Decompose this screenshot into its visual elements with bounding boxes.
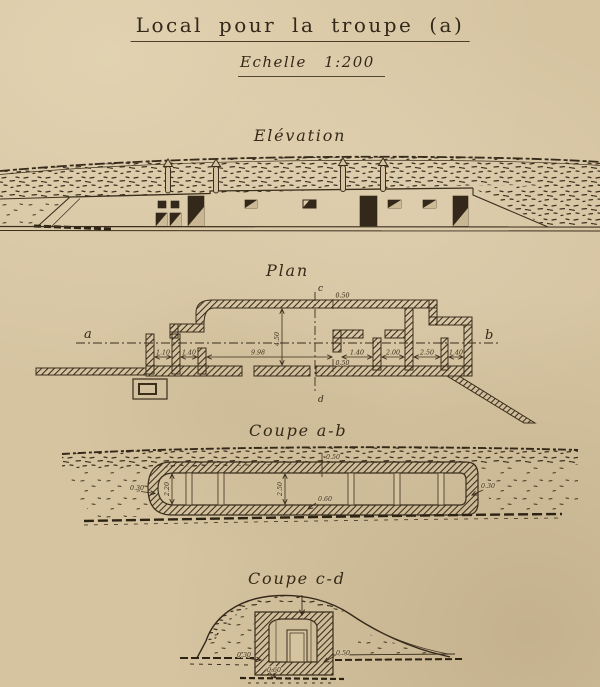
partition — [348, 473, 354, 505]
section-marker-d: d — [318, 395, 324, 405]
elevation-label: Elévation — [254, 126, 347, 145]
coupe-ab-drawing: 0.50 0.30 2.20 2.50 0.60 0.30 — [0, 441, 600, 541]
bottom-wall — [146, 366, 242, 376]
plan-drawing: 4.50 9.98 1.10 1.40 1.40 2.00 2.50 1.40 … — [0, 282, 600, 425]
partition — [218, 473, 224, 505]
dim-right-wall: 0.50 — [336, 650, 350, 657]
dim-roof: 0.50 — [326, 454, 340, 461]
facade-openings — [156, 196, 468, 226]
dim-right-wall: 0.30 — [481, 483, 495, 490]
right-earth — [333, 629, 462, 660]
dim-floor: 0.60 — [267, 667, 281, 674]
door — [360, 196, 377, 226]
dim-room2: 2.00 — [385, 350, 400, 357]
coupe-cd-drawing: 0.30 0.60 0.50 — [0, 585, 600, 687]
partition — [438, 473, 444, 505]
shell — [148, 462, 478, 515]
dim-room1: 1.40 — [350, 350, 364, 357]
elevation-drawing — [0, 147, 600, 252]
dim-left-wall: 0.30 — [130, 485, 144, 492]
bottom-wall — [316, 366, 472, 376]
section-marker-b: b — [485, 328, 493, 343]
top-wall — [196, 300, 437, 324]
window — [158, 201, 166, 208]
partitions — [186, 473, 444, 505]
partition — [405, 308, 413, 370]
dim-height-left: 2.20 — [164, 482, 171, 497]
page-title: Local pour la troupe (a) — [131, 13, 470, 42]
plan-label: Plan — [266, 261, 309, 280]
window — [171, 201, 179, 208]
plan-walls — [36, 300, 535, 423]
dim-room4: 1.40 — [449, 350, 463, 357]
dim-wall-bottom: 0.50 — [336, 360, 350, 367]
dim-height-main: 2.50 — [277, 482, 284, 497]
coupe-ab-label: Coupe a-b — [249, 421, 347, 440]
dim-left-wall: 0.30 — [237, 652, 251, 659]
partition — [394, 473, 400, 505]
annex-box — [133, 379, 167, 399]
left-embankment — [0, 197, 112, 229]
diagonal-wall — [447, 376, 535, 423]
section-marker-c: c — [318, 284, 323, 294]
dim-wall-top: 0.50 — [336, 293, 350, 300]
dim-length: 9.98 — [251, 350, 265, 357]
section-marker-a: a — [84, 327, 92, 342]
approach-wall — [36, 368, 146, 375]
drawing-sheet: Local pour la troupe (a) Echelle 1:200 E… — [0, 0, 600, 687]
scale-note: Echelle 1:200 — [238, 53, 385, 77]
partition — [186, 473, 192, 505]
ground-line — [84, 514, 562, 525]
dim-corridor: 1.10 — [156, 350, 170, 357]
chamber-door — [287, 630, 307, 662]
right-embankment — [473, 183, 600, 227]
dim-depth: 4.50 — [274, 332, 281, 347]
dim-entry: 1.40 — [182, 350, 196, 357]
ground-under — [240, 678, 344, 683]
dim-floor: 0.60 — [318, 496, 332, 503]
dim-room3: 2.50 — [419, 350, 434, 357]
bottom-wall — [254, 366, 310, 376]
right-wall — [464, 325, 472, 376]
